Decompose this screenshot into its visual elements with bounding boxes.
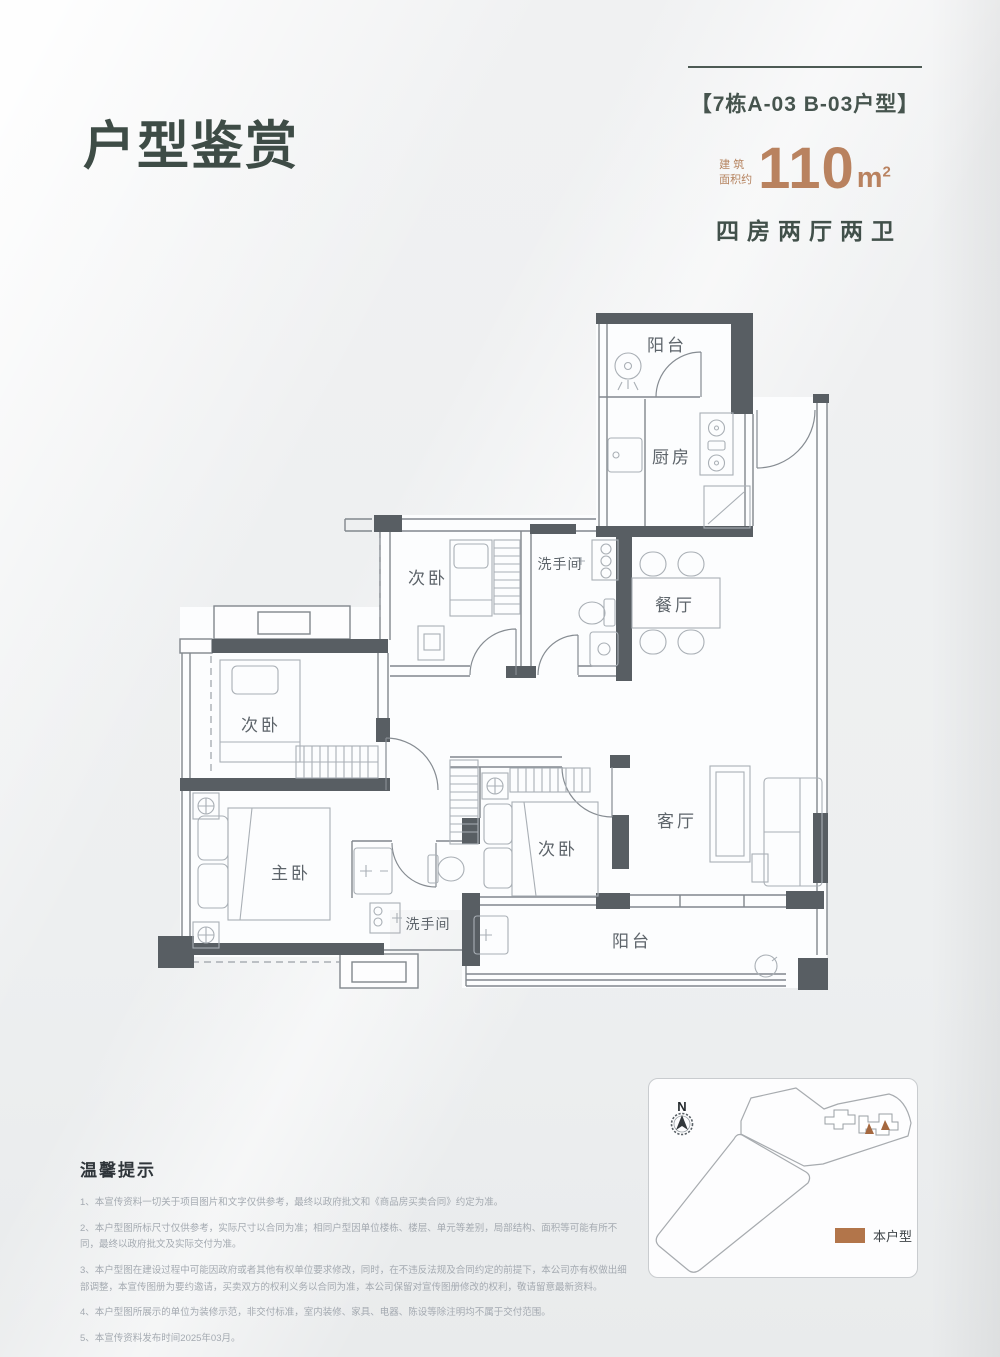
room-label-master-bedroom: 主卧 [271,864,311,883]
room-label-bedroom-top: 次卧 [408,569,448,588]
unit-header: 【7栋A-03 B-03户型】 建 筑面积约 110 m2 四房两厅两卫 [688,66,922,246]
tips-item: 2、本户型图所标尺寸仅供参考，实际尺寸以合同为准；相同户型因单位楼栋、楼层、单元… [80,1221,636,1254]
tips-item: 5、本宣传资料发布时间2025年03月。 [80,1331,636,1348]
page-title: 户型鉴赏 [83,104,299,179]
tips-heading: 温馨提示 [80,1156,636,1181]
room-label-kitchen: 厨房 [652,448,692,467]
area-prefix-line2: 面积约 [719,174,752,186]
room-label-balcony-bottom: 阳台 [612,932,652,951]
site-buildings [825,1110,898,1135]
room-label-bedroom-left: 次卧 [241,716,281,735]
brochure-page: 户型鉴赏 【7栋A-03 B-03户型】 建 筑面积约 110 m2 四房两厅两… [0,0,1000,1357]
room-label-living: 客厅 [657,812,697,831]
site-parcels [656,1088,911,1272]
area-exponent: 2 [883,163,891,180]
site-map: N 本户型 [648,1078,918,1278]
header-rule [688,66,922,68]
unit-tag: 【7栋A-03 B-03户型】 [688,88,922,118]
compass-n-label: N [677,1099,686,1114]
area-unit: m2 [857,162,891,195]
site-map-graphic: N 本户型 [649,1079,919,1279]
legend-label: 本户型 [873,1229,912,1244]
layout-summary: 四房两厅两卫 [688,212,922,246]
area-prefix: 建 筑面积约 [719,158,752,188]
legend-swatch [835,1228,865,1243]
floorplan: 阳台 厨房 次卧 洗手间 餐厅 次卧 主卧 洗手间 次卧 客厅 阳台 [140,290,870,1030]
tips-item: 1、本宣传资料一切关于项目图片和文字仅供参考，最终以政府批文和《商品房买卖合同》… [80,1195,636,1212]
tips-section: 温馨提示 1、本宣传资料一切关于项目图片和文字仅供参考，最终以政府批文和《商品房… [80,1156,636,1356]
room-label-bedroom-mid: 次卧 [538,840,578,859]
area-prefix-line1: 建 筑 [719,159,744,171]
tips-item: 3、本户型图在建设过程中可能因政府或者其他有权单位要求修改，同时，在不违反法规及… [80,1263,636,1296]
room-label-balcony-top: 阳台 [647,336,687,355]
area-value: 110 [758,140,855,198]
area-row: 建 筑面积约 110 m2 [688,140,922,198]
room-label-bath-top: 洗手间 [538,556,583,572]
compass-icon: N [672,1099,693,1135]
room-label-bath-bottom: 洗手间 [406,916,451,932]
room-label-dining: 餐厅 [655,596,695,615]
area-unit-letter: m [857,162,883,194]
tips-item: 4、本户型图所展示的单位为装修示范，非交付标准，室内装修、家具、电器、陈设等除注… [80,1305,636,1322]
map-legend: 本户型 [835,1228,912,1244]
